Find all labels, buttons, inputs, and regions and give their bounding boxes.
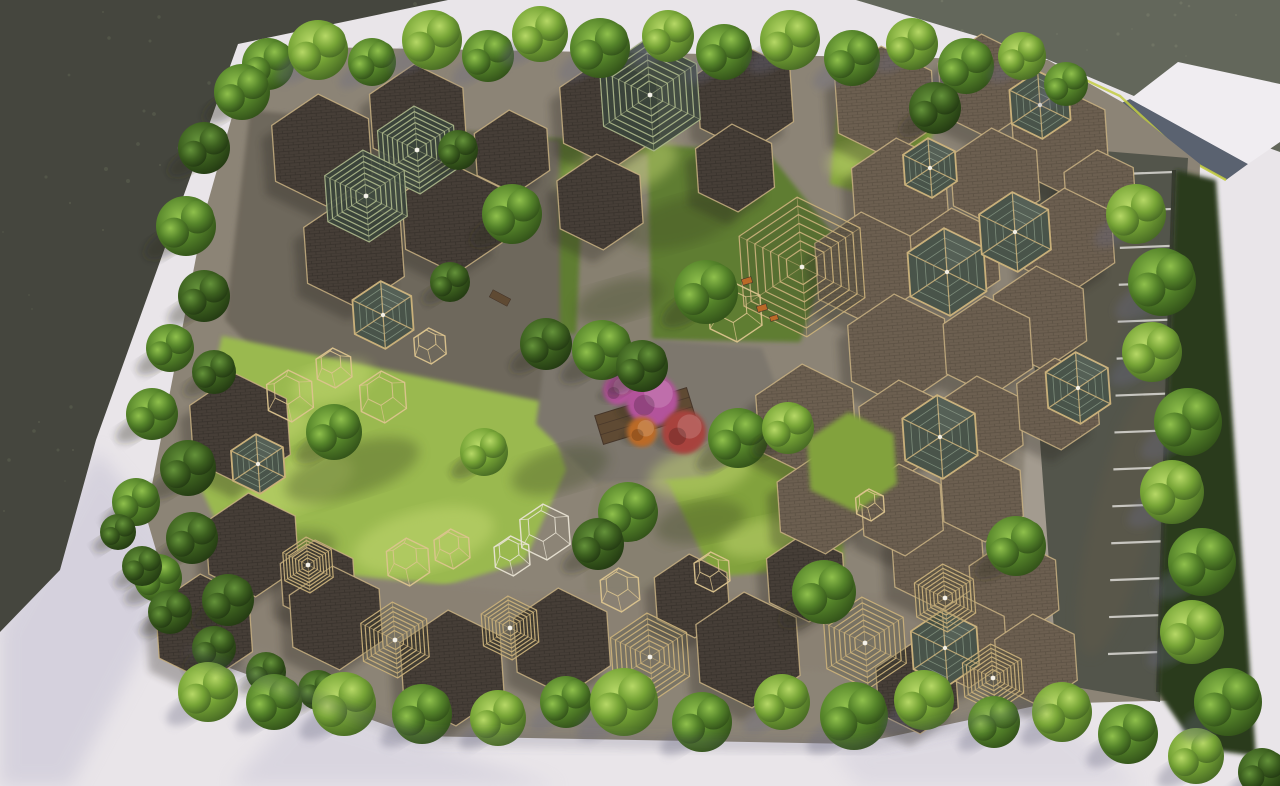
speckle-dot <box>1151 43 1154 46</box>
speckle-dot <box>44 175 47 178</box>
tree-canopy-lobe <box>645 29 671 55</box>
architectural-aerial-rendering <box>0 0 1280 786</box>
pergola-hub <box>393 638 398 643</box>
tree-canopy-lobe <box>309 424 337 452</box>
wire-hex-edge <box>299 382 312 383</box>
tree-canopy-lobe <box>1157 412 1191 446</box>
speckle-dot <box>69 202 71 204</box>
tree-canopy-lobe <box>249 694 277 722</box>
tree-canopy-lobe <box>823 706 857 740</box>
tree-canopy-lobe <box>763 32 793 62</box>
speckle-dot <box>68 74 71 77</box>
tree-canopy-lobe <box>181 684 211 714</box>
tree-canopy-lobe <box>194 366 216 388</box>
tree-canopy-lobe <box>1171 552 1205 586</box>
pergola-hub <box>306 563 311 568</box>
tree-canopy-lobe <box>573 40 603 70</box>
tree-canopy-lobe <box>677 283 709 315</box>
tree-canopy-lobe <box>129 407 155 433</box>
tree-canopy-lobe <box>1163 623 1195 655</box>
tree-canopy-lobe <box>440 144 460 164</box>
wire-hex-edge <box>627 577 638 578</box>
skylight-hub <box>256 462 260 466</box>
tree-canopy-lobe <box>150 606 172 628</box>
tree-canopy-lobe <box>1046 78 1068 100</box>
speckle-dot <box>149 40 152 43</box>
tree-canopy-lobe <box>543 695 569 721</box>
tree-canopy-lobe <box>485 206 515 236</box>
skylight-hub <box>1013 230 1017 234</box>
tree-canopy-lobe <box>575 537 601 563</box>
tree-canopy-lobe <box>217 84 245 112</box>
tree-canopy-lobe <box>181 141 207 167</box>
tree-canopy-lobe <box>205 593 231 619</box>
speckle-dot <box>136 142 140 146</box>
tree-canopy-lobe <box>765 421 791 447</box>
tree-canopy-lobe <box>350 55 374 79</box>
tree-canopy-lobe <box>912 101 938 127</box>
tree-canopy-lobe <box>148 341 172 365</box>
speckle-dot <box>1174 14 1177 17</box>
tree-canopy-lobe <box>163 460 191 488</box>
tree-canopy-lobe <box>432 276 452 296</box>
tree-canopy-lobe <box>1109 206 1139 236</box>
pergola-hub <box>863 641 868 646</box>
pergola-hub <box>991 676 996 681</box>
tree-canopy-lobe <box>619 359 645 385</box>
speckle-dot <box>3 510 5 512</box>
tree-canopy-lobe <box>1131 272 1165 306</box>
speckle-dot <box>1086 49 1088 51</box>
speckle-dot <box>64 480 66 482</box>
speckle-dot <box>102 229 104 231</box>
flower-core-shade <box>632 429 644 441</box>
speckle-dot <box>102 11 104 13</box>
tree-canopy-lobe <box>827 50 855 78</box>
skylight-hub <box>943 646 947 650</box>
tree-canopy-lobe <box>515 26 543 54</box>
speckle-dot <box>143 110 146 113</box>
tree-canopy-lobe <box>757 694 785 722</box>
speckle-dot <box>159 164 161 166</box>
tree-canopy-lobe <box>989 538 1019 568</box>
pergola-hub <box>800 265 805 270</box>
speckle-dot <box>57 449 60 452</box>
skylight-hub <box>945 270 949 274</box>
skylight-hub <box>381 313 385 317</box>
skylight-hub <box>928 166 932 170</box>
speckle-dot <box>1235 14 1237 16</box>
wire-hex-edge <box>520 519 528 520</box>
speckle-dot <box>1146 13 1149 16</box>
speckle-dot <box>126 179 130 183</box>
speckle-dot <box>152 112 156 116</box>
pergola-hub <box>648 655 653 660</box>
pergola-hub <box>508 626 513 631</box>
tree-canopy-lobe <box>593 692 627 726</box>
pergola-hub <box>415 148 420 153</box>
speckle-dot <box>31 308 33 310</box>
tree-canopy-lobe <box>711 430 741 460</box>
tree-canopy-lobe <box>405 32 435 62</box>
speckle-dot <box>1175 45 1178 48</box>
tree-canopy-lobe <box>1197 692 1231 726</box>
speckle-dot <box>1131 28 1133 30</box>
tree-canopy-lobe <box>699 44 727 72</box>
tree-canopy-lobe <box>291 42 321 72</box>
tree-canopy-lobe <box>1000 49 1024 73</box>
speckle-dot <box>1185 55 1187 57</box>
speckle-dot <box>207 81 210 84</box>
skylight-hub <box>938 435 942 439</box>
speckle-dot <box>28 294 30 296</box>
tree-canopy-lobe <box>1171 748 1199 776</box>
tree-canopy-lobe <box>523 337 549 363</box>
speckle-dot <box>413 2 417 6</box>
skylight-hub <box>1076 386 1080 390</box>
speckle-dot <box>157 15 160 18</box>
tree-canopy-lobe <box>575 342 605 372</box>
tree-canopy-lobe <box>462 445 486 469</box>
tree-canopy-lobe <box>159 218 189 248</box>
speckle-dot <box>1188 5 1191 8</box>
tree-canopy-lobe <box>1143 483 1175 515</box>
tree-canopy-lobe <box>1101 726 1131 756</box>
speckle-dot <box>69 405 72 408</box>
tree-canopy-lobe <box>795 583 827 615</box>
speckle-dot <box>104 167 108 171</box>
tree-canopy-lobe <box>169 531 195 557</box>
tree-canopy-lobe <box>473 710 501 738</box>
tree-canopy-lobe <box>897 692 927 722</box>
rendered-scene <box>0 0 1280 786</box>
tree-canopy-lobe <box>465 49 491 75</box>
tree-canopy-lobe <box>124 560 144 580</box>
speckle-dot <box>107 36 111 40</box>
speckle-dot <box>72 449 74 451</box>
speckle-dot <box>1056 33 1058 35</box>
wire-hex-edge <box>392 383 405 384</box>
tree-canopy-lobe <box>1125 344 1155 374</box>
speckle-dot <box>32 429 36 433</box>
flower-core-shade <box>634 395 655 416</box>
speckle-dot <box>1116 32 1119 35</box>
speckle-dot <box>38 421 40 423</box>
speckle-dot <box>7 458 11 462</box>
pergola-hub <box>648 93 653 98</box>
pergola-hub <box>364 194 369 199</box>
tree-canopy-lobe <box>889 37 915 63</box>
tree-canopy-lobe <box>181 289 207 315</box>
pergola-hub <box>943 596 948 601</box>
tree-canopy-lobe <box>941 58 969 86</box>
speckle-dot <box>1180 2 1183 5</box>
site-plan-canvas <box>0 0 1280 786</box>
tree-canopy-lobe <box>102 527 120 545</box>
flower-core-shade <box>669 428 687 446</box>
speckle-dot <box>2 231 4 233</box>
